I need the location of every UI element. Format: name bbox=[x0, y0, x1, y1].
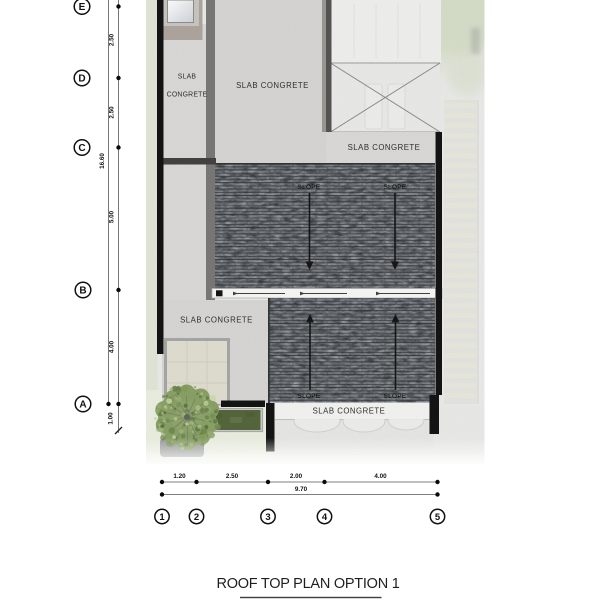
svg-text:B: B bbox=[79, 286, 86, 297]
svg-text:SLAB CONGRETE: SLAB CONGRETE bbox=[348, 143, 421, 152]
svg-text:E: E bbox=[79, 2, 86, 13]
svg-text:A: A bbox=[79, 400, 86, 411]
svg-text:4.00: 4.00 bbox=[374, 473, 387, 480]
svg-text:D: D bbox=[78, 74, 85, 85]
svg-text:4: 4 bbox=[322, 512, 328, 523]
svg-text:2: 2 bbox=[194, 512, 199, 523]
svg-text:SLAB: SLAB bbox=[178, 74, 197, 81]
svg-text:ROOF TOP PLAN OPTION 1: ROOF TOP PLAN OPTION 1 bbox=[216, 576, 399, 592]
svg-text:1: 1 bbox=[159, 512, 165, 523]
svg-text:C: C bbox=[78, 143, 85, 154]
svg-text:3: 3 bbox=[265, 512, 270, 523]
svg-text:4.00: 4.00 bbox=[109, 340, 116, 353]
svg-text:1.00: 1.00 bbox=[108, 412, 115, 425]
svg-text:SLAB CONGRETE: SLAB CONGRETE bbox=[313, 407, 386, 416]
svg-text:SLAB CONGRETE: SLAB CONGRETE bbox=[236, 81, 309, 90]
svg-text:2.50: 2.50 bbox=[226, 473, 239, 480]
svg-text:16.60: 16.60 bbox=[99, 153, 106, 169]
svg-text:CONGRETE: CONGRETE bbox=[167, 92, 208, 99]
svg-text:SLAB CONGRETE: SLAB CONGRETE bbox=[180, 316, 253, 325]
svg-text:5: 5 bbox=[435, 512, 441, 523]
svg-text:2.50: 2.50 bbox=[109, 106, 116, 119]
svg-text:2.00: 2.00 bbox=[290, 473, 303, 480]
svg-text:9.70: 9.70 bbox=[295, 486, 308, 493]
svg-text:1.20: 1.20 bbox=[173, 473, 186, 480]
svg-text:5.00: 5.00 bbox=[109, 210, 116, 223]
svg-text:2.50: 2.50 bbox=[109, 33, 116, 46]
